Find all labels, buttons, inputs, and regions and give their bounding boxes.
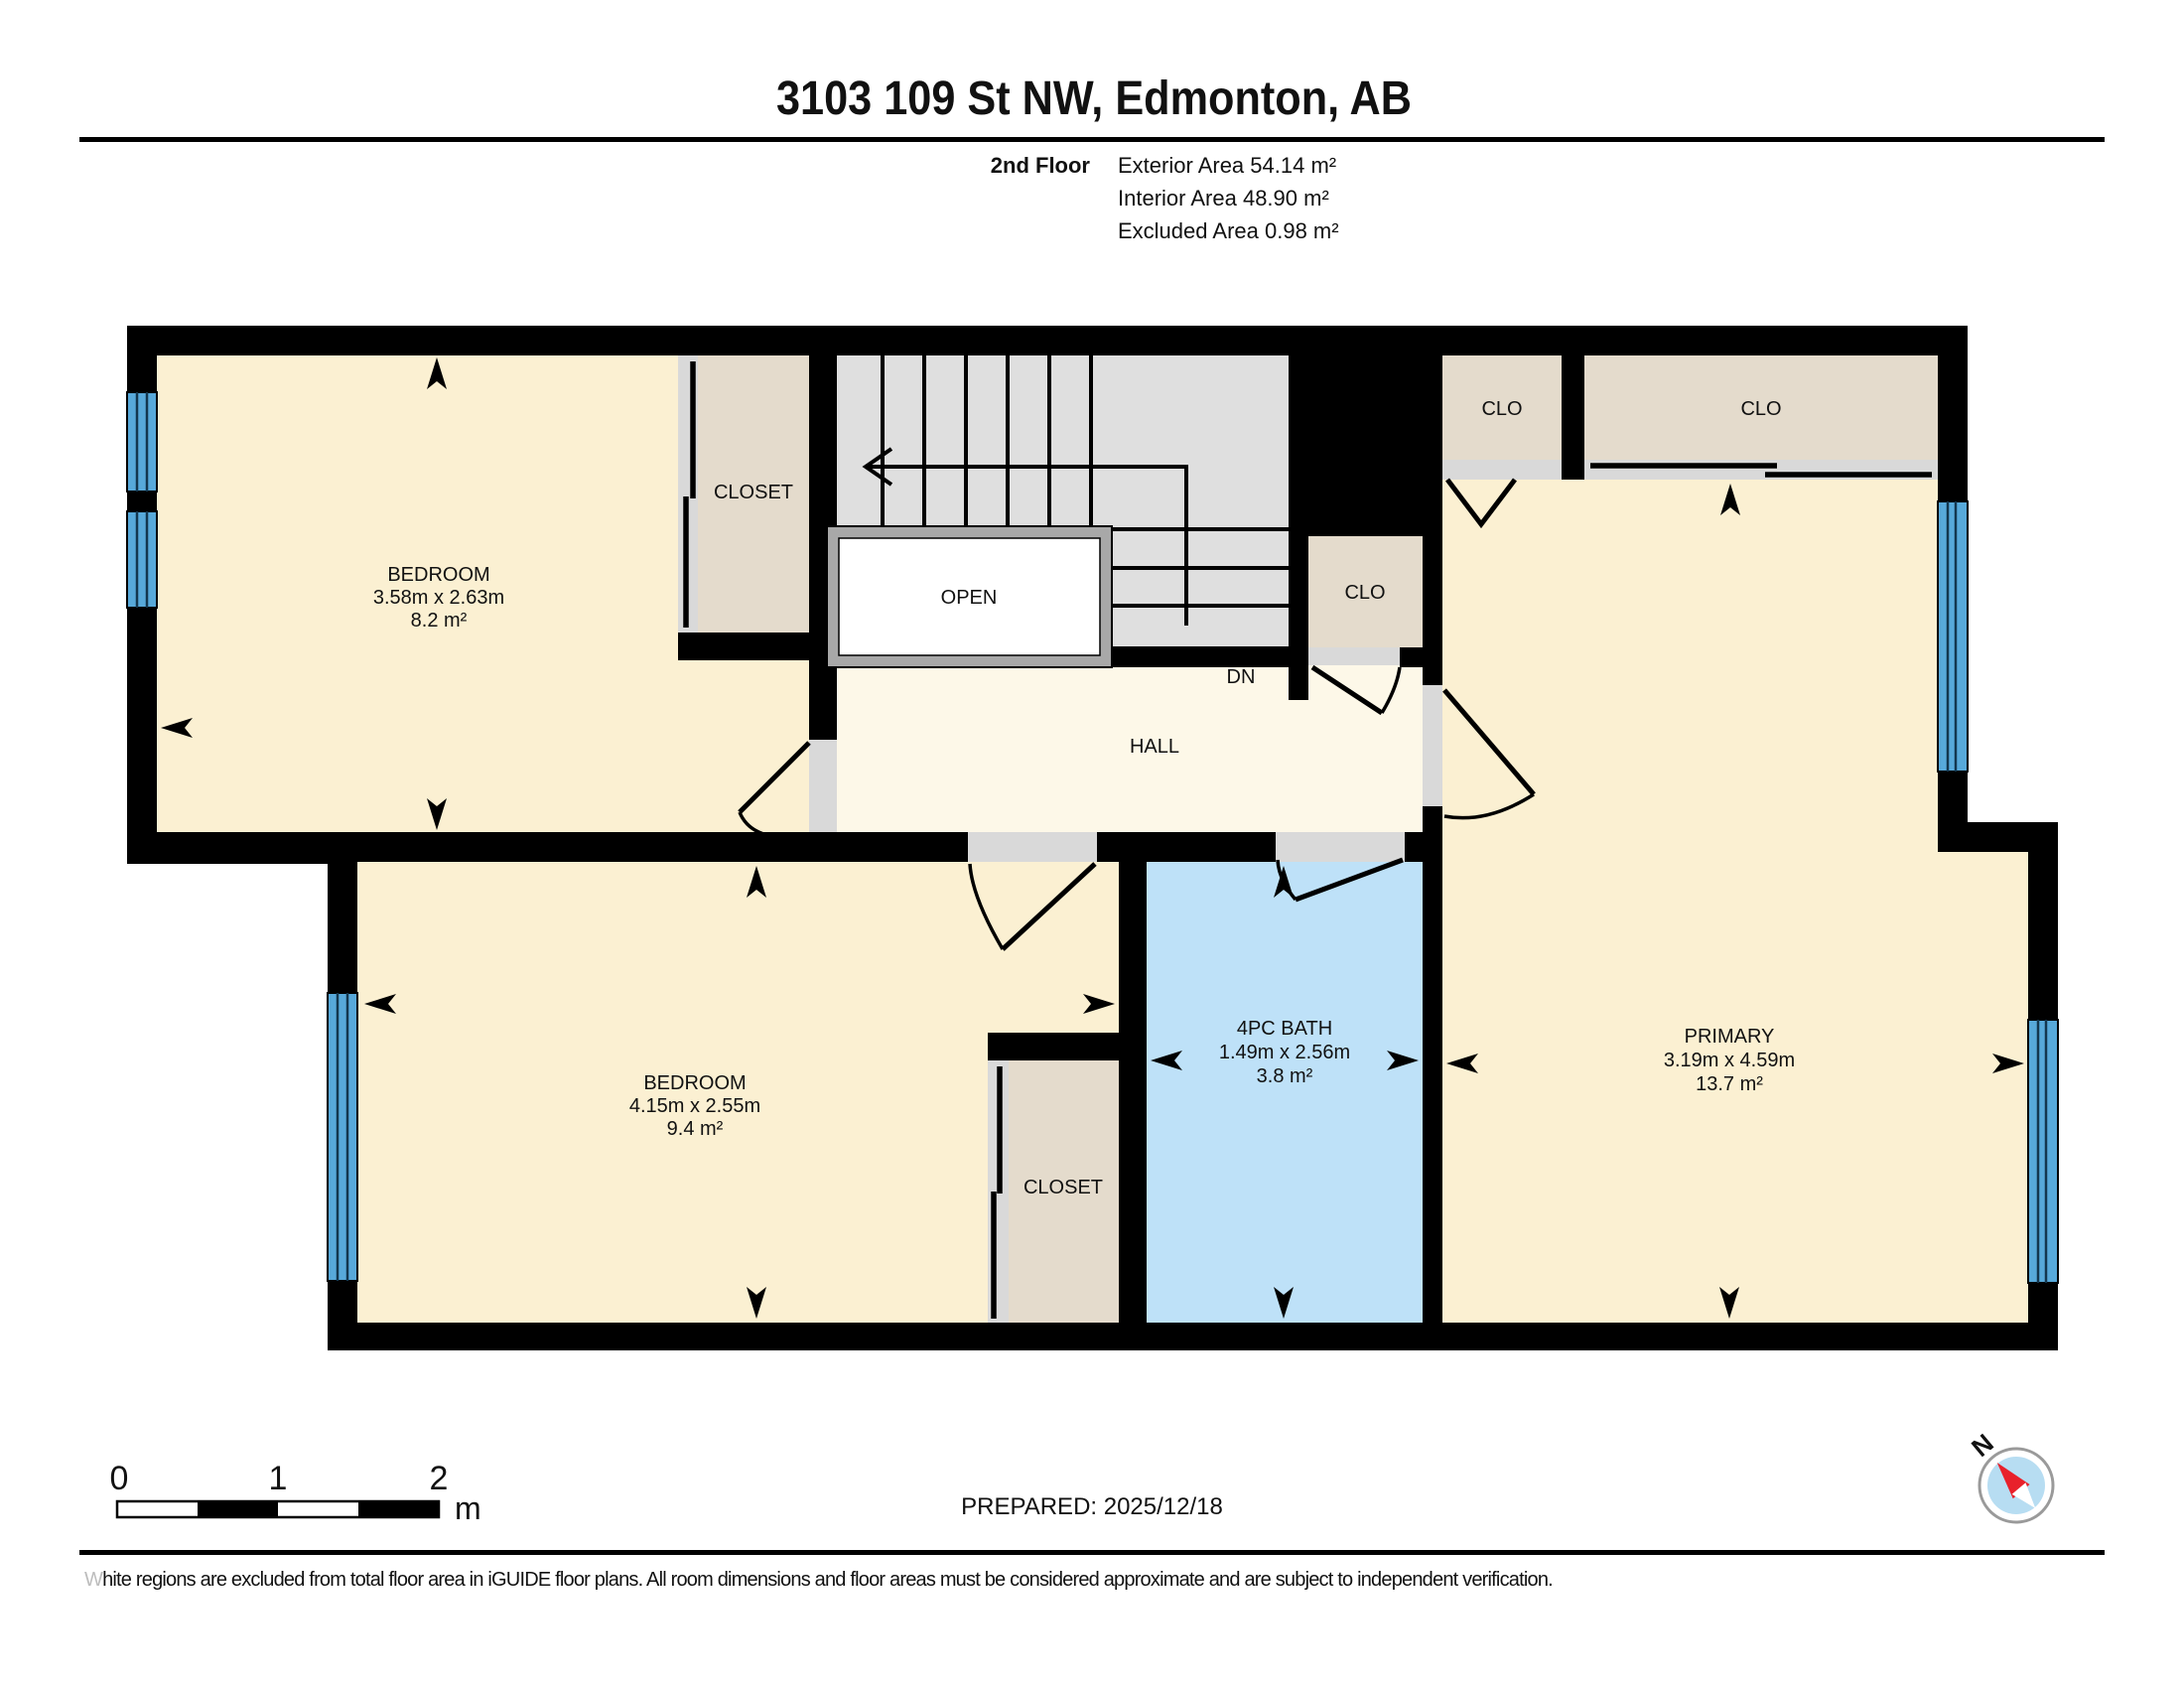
compass: N [1965,1427,2053,1522]
bath-area: 3.8 m² [1257,1065,1313,1087]
floorplan-page: 3103 109 St NW, Edmonton, AB 2nd Floor E… [0,0,2184,1688]
bath-floor [1132,847,1430,1337]
scale-tick-1: 1 [269,1460,288,1497]
closet-1-label: CLOSET [714,482,793,503]
clo-top-right-label: CLO [1740,398,1781,420]
scale-unit: m [455,1490,481,1526]
primary-area: 13.7 m² [1696,1073,1763,1095]
scale-bar: 0 1 2 m [110,1460,481,1526]
dn-label: DN [1227,666,1256,688]
stat-excluded: Excluded Area 0.98 m² [1118,218,1339,243]
bedroom-2-dims: 4.15m x 2.55m [629,1095,760,1117]
bedroom-1-window-upper [127,392,157,492]
clo-top-left-label: CLO [1481,398,1522,420]
bedroom-1-door-opening [809,740,837,832]
scale-bar-segment [358,1501,439,1517]
primary-door-opening [1423,685,1442,806]
disclaimer-first-letter: W [84,1569,103,1591]
footer-rule [79,1550,2105,1555]
bedroom-2-area: 9.4 m² [667,1118,724,1140]
primary-dims: 3.19m x 4.59m [1664,1050,1795,1071]
primary-window-lower [2028,1020,2058,1283]
bedroom-1-area: 8.2 m² [411,610,468,632]
floorplan-canvas: 3103 109 St NW, Edmonton, AB 2nd Floor E… [0,0,2184,1688]
bath-dims: 1.49m x 2.56m [1219,1042,1350,1063]
title-rule [79,137,2105,142]
bath-door-opening [1276,832,1405,862]
primary-window-upper [1938,501,1968,772]
bedroom-2-door-opening [968,832,1097,862]
scale-tick-2: 2 [430,1460,449,1497]
clo-top-left-track [1442,460,1562,480]
primary-name: PRIMARY [1685,1026,1775,1048]
stat-exterior: Exterior Area 54.14 m² [1118,153,1336,178]
bedroom-2-name: BEDROOM [643,1072,746,1094]
clo-mid-label: CLO [1344,582,1385,604]
bedroom-1-window-lower [127,511,157,608]
disclaimer-text: hite regions are excluded from total flo… [102,1569,1553,1591]
header: 3103 109 St NW, Edmonton, AB 2nd Floor E… [79,72,2105,243]
open-label: OPEN [941,587,998,609]
disclaimer: White regions are excluded from total fl… [84,1569,1553,1591]
floor-label: 2nd Floor [991,153,1091,178]
bedroom-2-window [328,993,357,1281]
page-title: 3103 109 St NW, Edmonton, AB [776,72,1412,125]
clo-mid-track [1308,647,1400,665]
bath-name: 4PC BATH [1237,1018,1332,1040]
bedroom-1-dims: 3.58m x 2.63m [373,587,504,609]
hall-label: HALL [1130,736,1179,758]
stat-interior: Interior Area 48.90 m² [1118,186,1329,211]
closet-2-label: CLOSET [1024,1177,1103,1198]
bedroom-1-name: BEDROOM [387,564,489,586]
scale-bar-segment [198,1501,278,1517]
scale-tick-0: 0 [110,1460,129,1497]
prepared-date: PREPARED: 2025/12/18 [961,1493,1223,1520]
